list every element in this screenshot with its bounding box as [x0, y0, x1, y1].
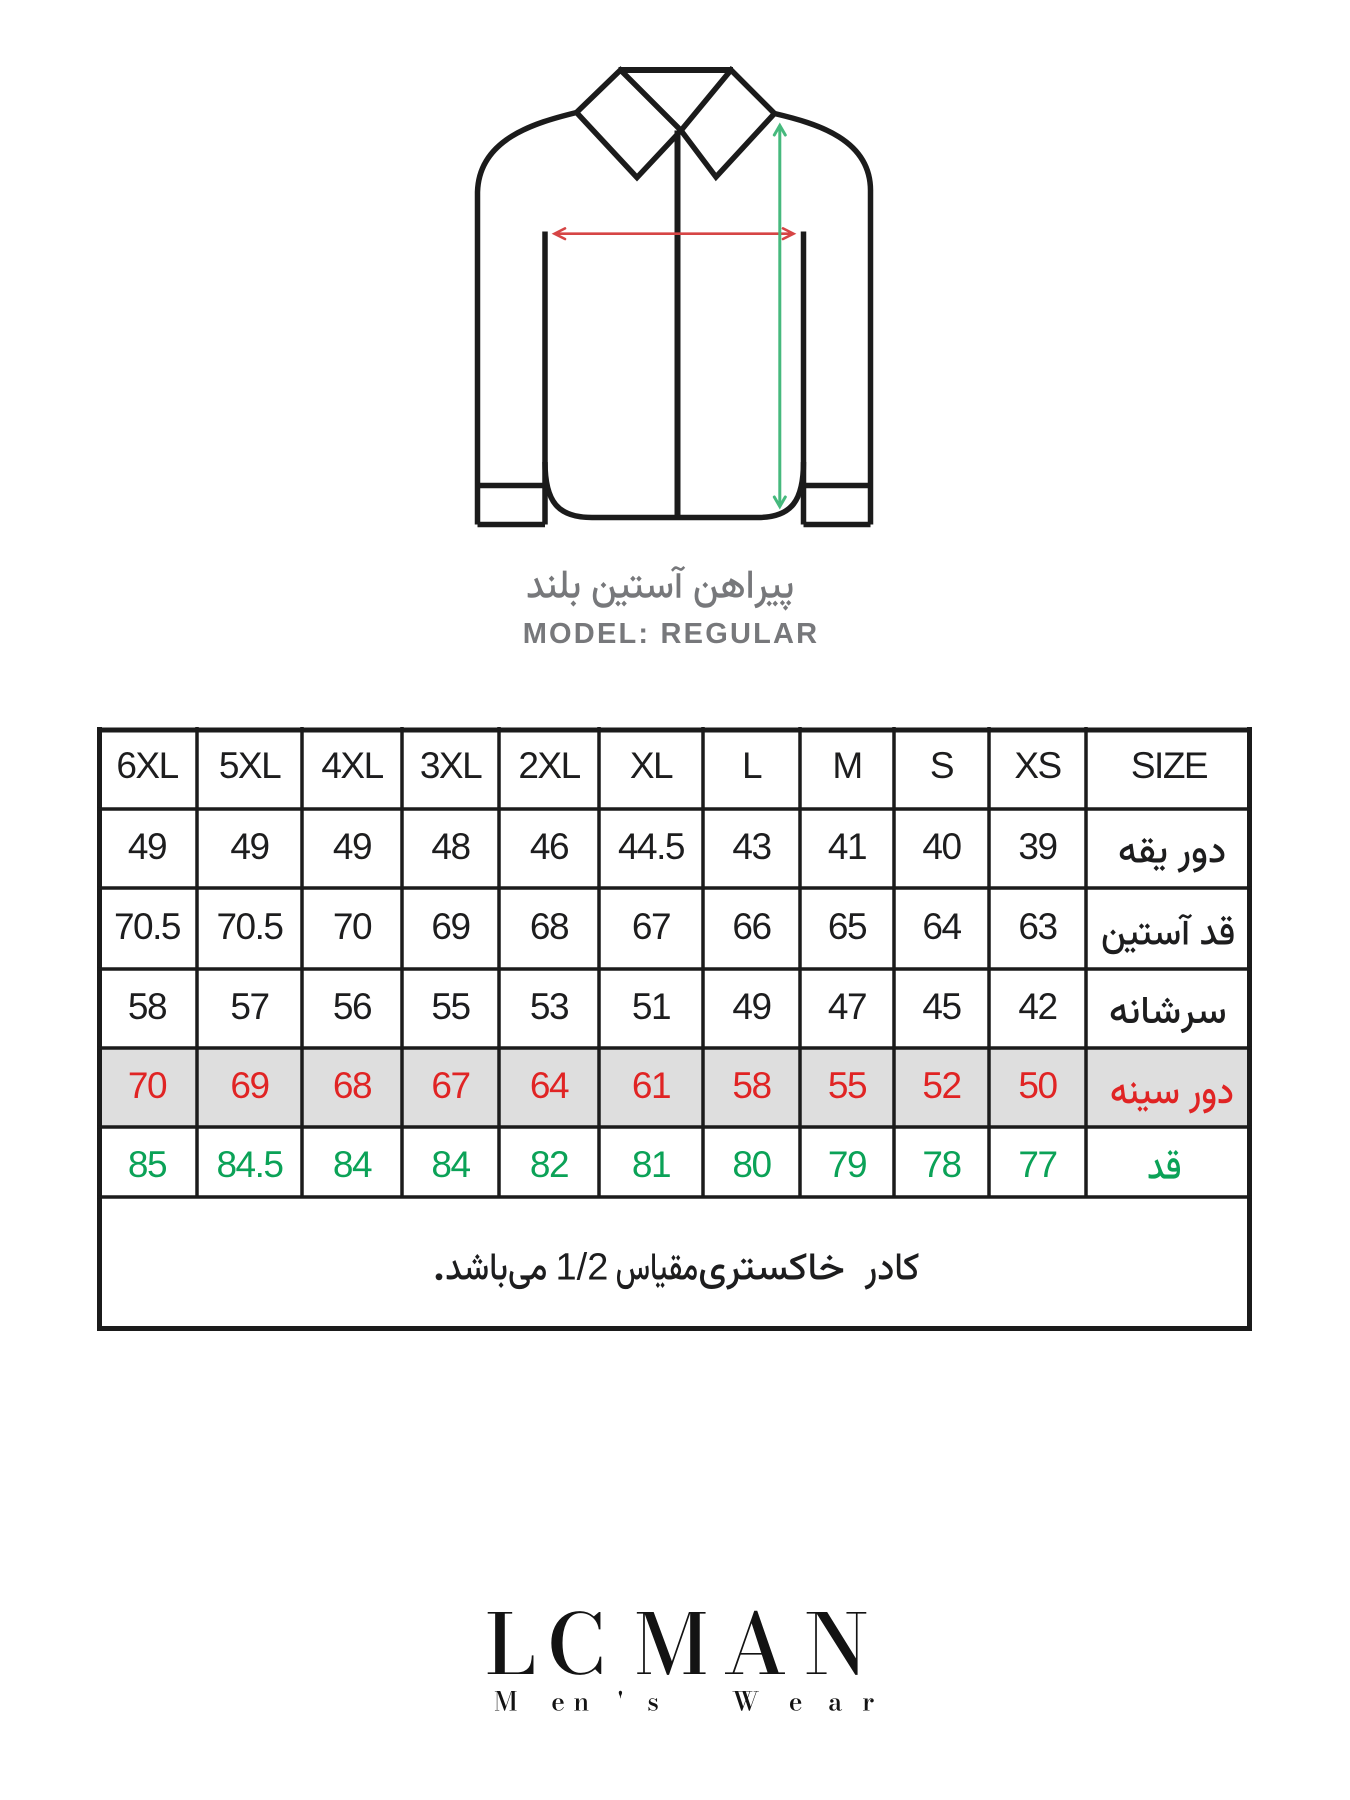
svg-text:1/2: 1/2 — [556, 1247, 609, 1289]
